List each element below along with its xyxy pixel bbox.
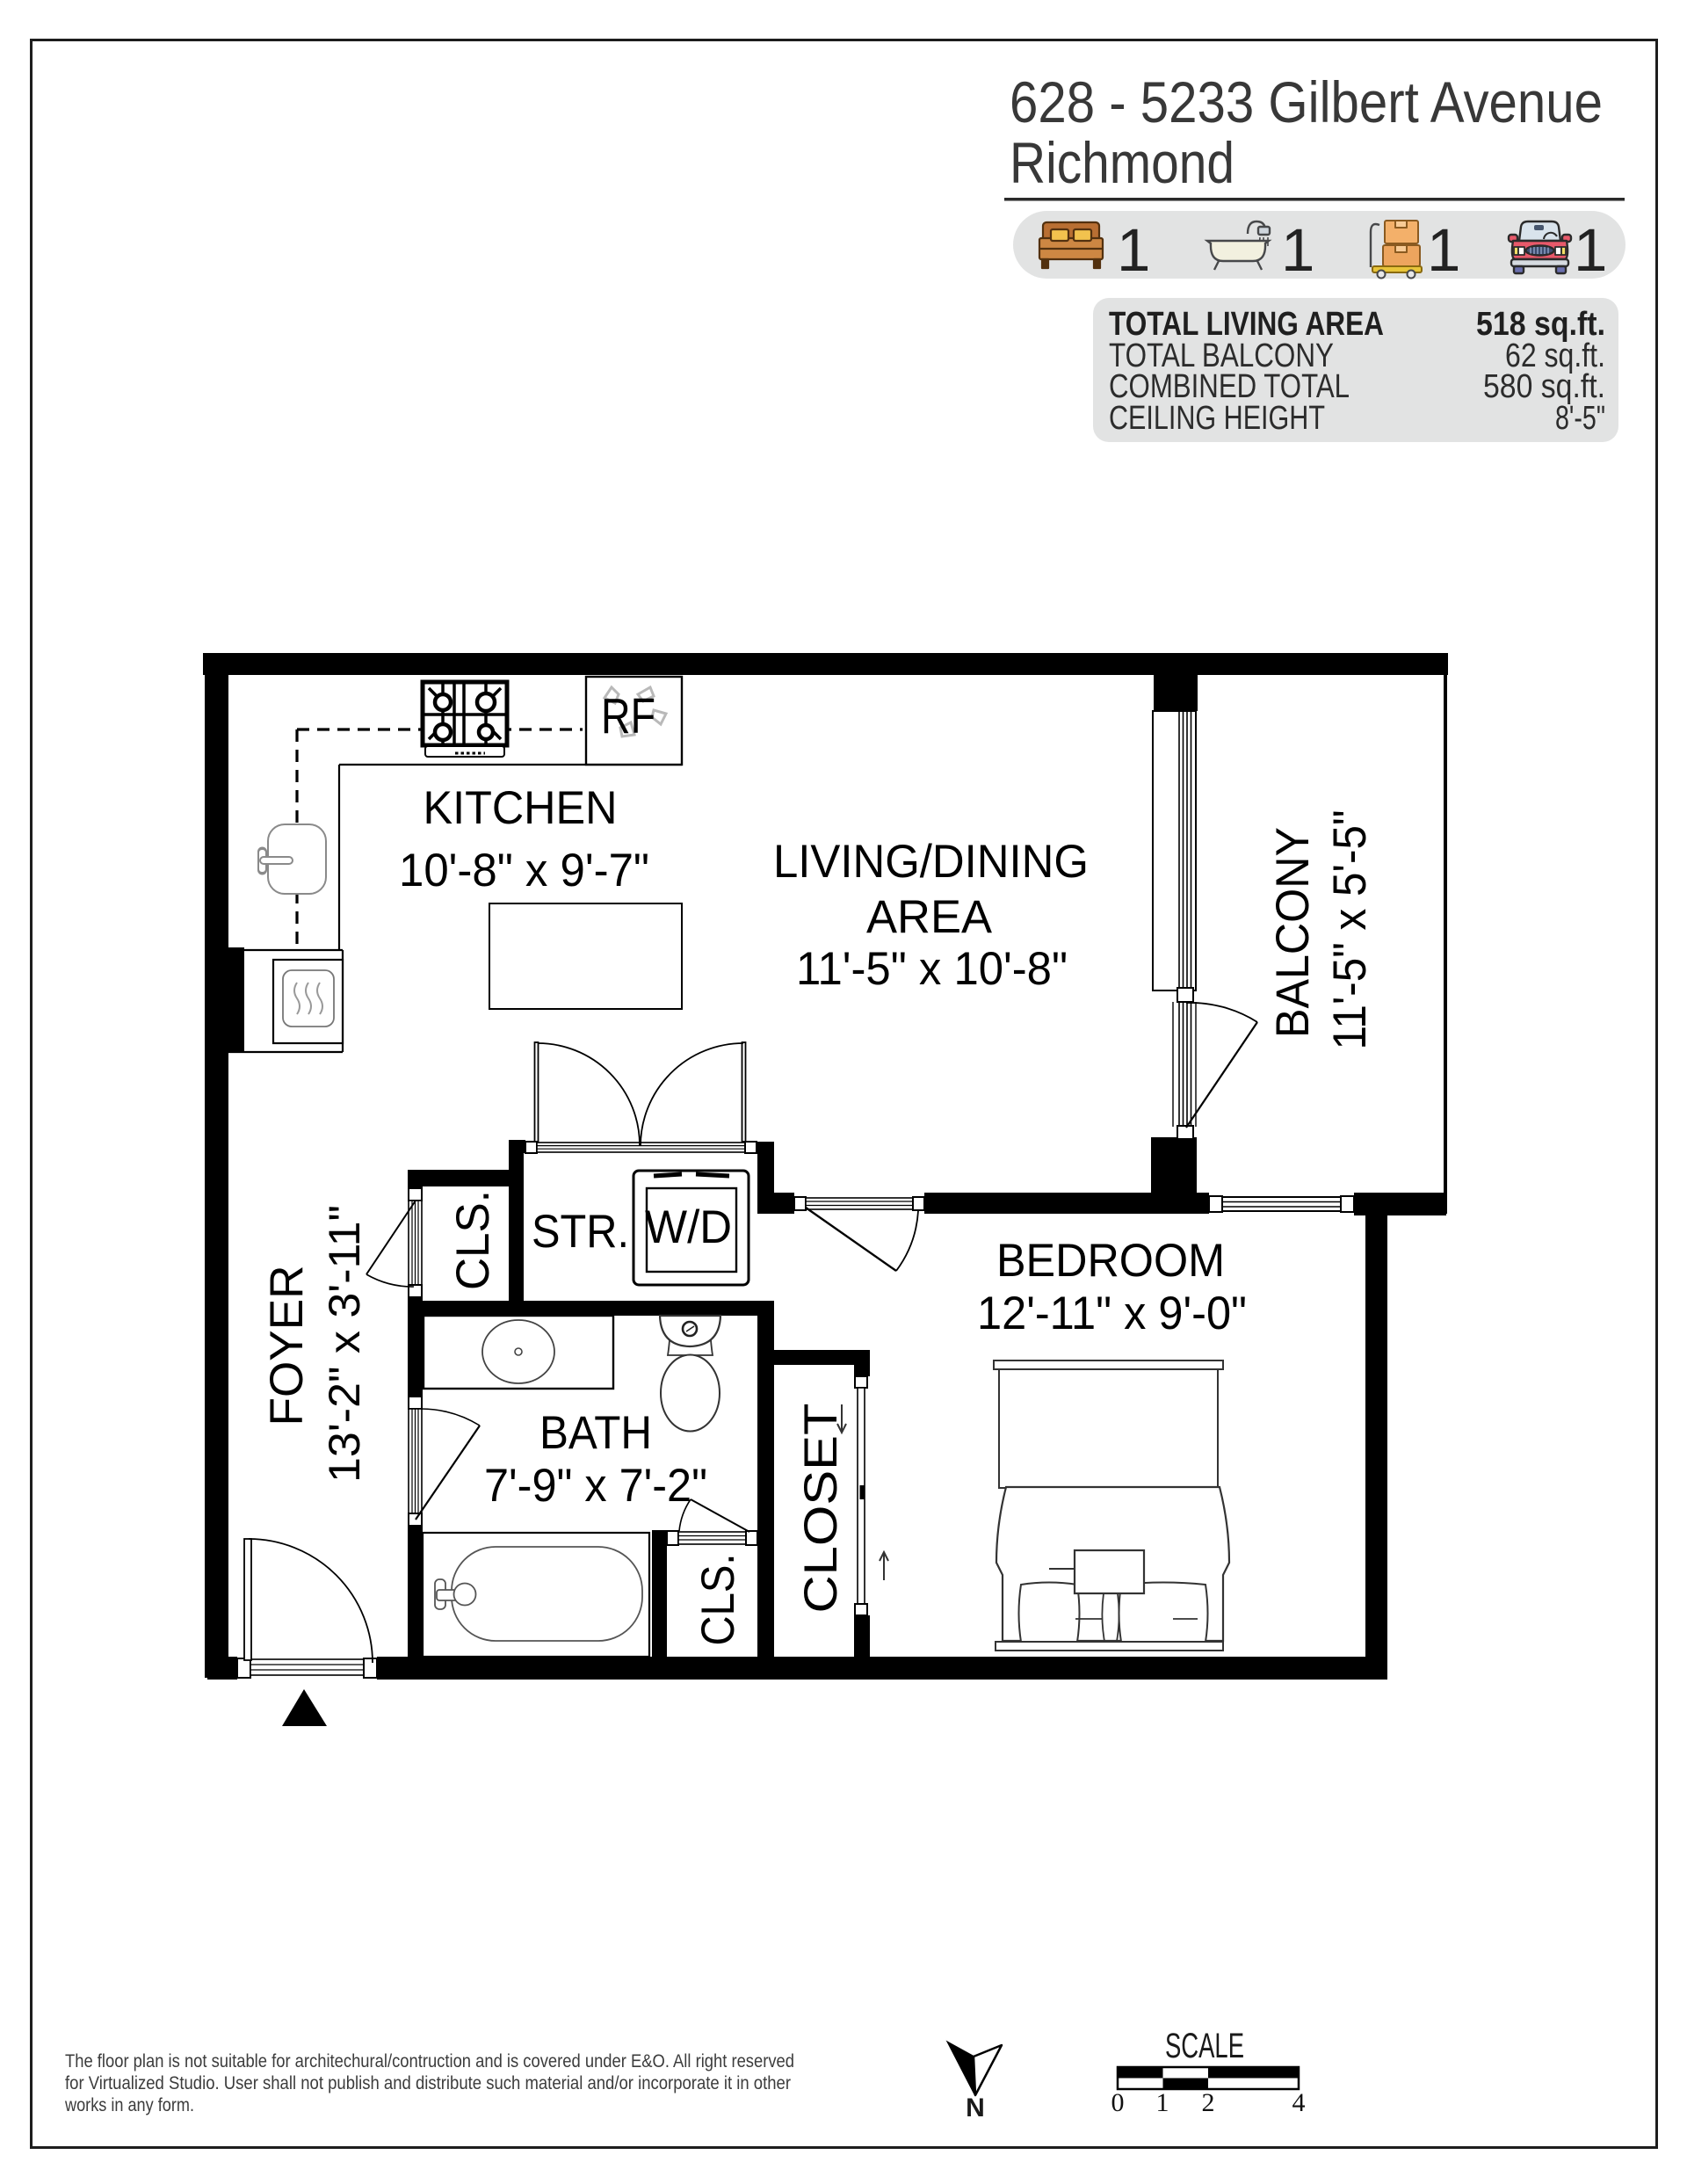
svg-text:The floor plan is not suitable: The floor plan is not suitable for archi… (65, 2050, 794, 2072)
svg-text:for Virtualized Studio. User s: for Virtualized Studio. User shall not p… (65, 2072, 791, 2093)
svg-text:1: 1 (1427, 216, 1460, 284)
svg-text:BATH: BATH (539, 1407, 652, 1459)
svg-text:W/D: W/D (645, 1201, 732, 1253)
svg-text:4: 4 (1292, 2088, 1306, 2117)
svg-text:12'-11" x 9'-0": 12'-11" x 9'-0" (977, 1288, 1247, 1339)
svg-text:LIVING/DINING: LIVING/DINING (773, 836, 1089, 888)
svg-text:SCALE: SCALE (1165, 2027, 1244, 2065)
svg-text:KITCHEN: KITCHEN (424, 782, 618, 834)
svg-text:10'-8" x 9'-7": 10'-8" x 9'-7" (399, 845, 649, 896)
svg-text:0: 0 (1111, 2088, 1125, 2117)
svg-text:STR.: STR. (532, 1206, 629, 1258)
svg-text:works in any form.: works in any form. (64, 2094, 194, 2115)
svg-text:11'-5" x 5'-5": 11'-5" x 5'-5" (1324, 810, 1376, 1050)
svg-text:11'-5" x 10'-8": 11'-5" x 10'-8" (796, 943, 1068, 995)
svg-text:Richmond: Richmond (1010, 130, 1234, 195)
svg-text:AREA: AREA (866, 891, 993, 943)
svg-text:CEILING HEIGHT: CEILING HEIGHT (1109, 400, 1325, 437)
svg-text:8'-5": 8'-5" (1555, 400, 1605, 437)
svg-text:1: 1 (1574, 216, 1607, 284)
svg-text:2: 2 (1202, 2088, 1215, 2117)
svg-text:628 - 5233 Gilbert Avenue: 628 - 5233 Gilbert Avenue (1010, 69, 1603, 134)
svg-text:RF: RF (601, 688, 655, 744)
svg-text:1: 1 (1156, 2088, 1169, 2117)
svg-text:7'-9" x 7'-2": 7'-9" x 7'-2" (484, 1460, 707, 1512)
svg-text:1: 1 (1281, 216, 1314, 284)
svg-text:BEDROOM: BEDROOM (996, 1235, 1225, 1287)
svg-text:CLS.: CLS. (447, 1190, 499, 1290)
svg-text:1: 1 (1117, 216, 1150, 284)
svg-text:13'-2" x 3'-11": 13'-2" x 3'-11" (320, 1205, 369, 1483)
svg-text:N: N (966, 2093, 985, 2122)
svg-text:FOYER: FOYER (261, 1266, 313, 1426)
svg-text:BALCONY: BALCONY (1267, 827, 1319, 1038)
svg-text:CLS.: CLS. (692, 1554, 744, 1646)
svg-text:CLOSET: CLOSET (795, 1404, 847, 1614)
